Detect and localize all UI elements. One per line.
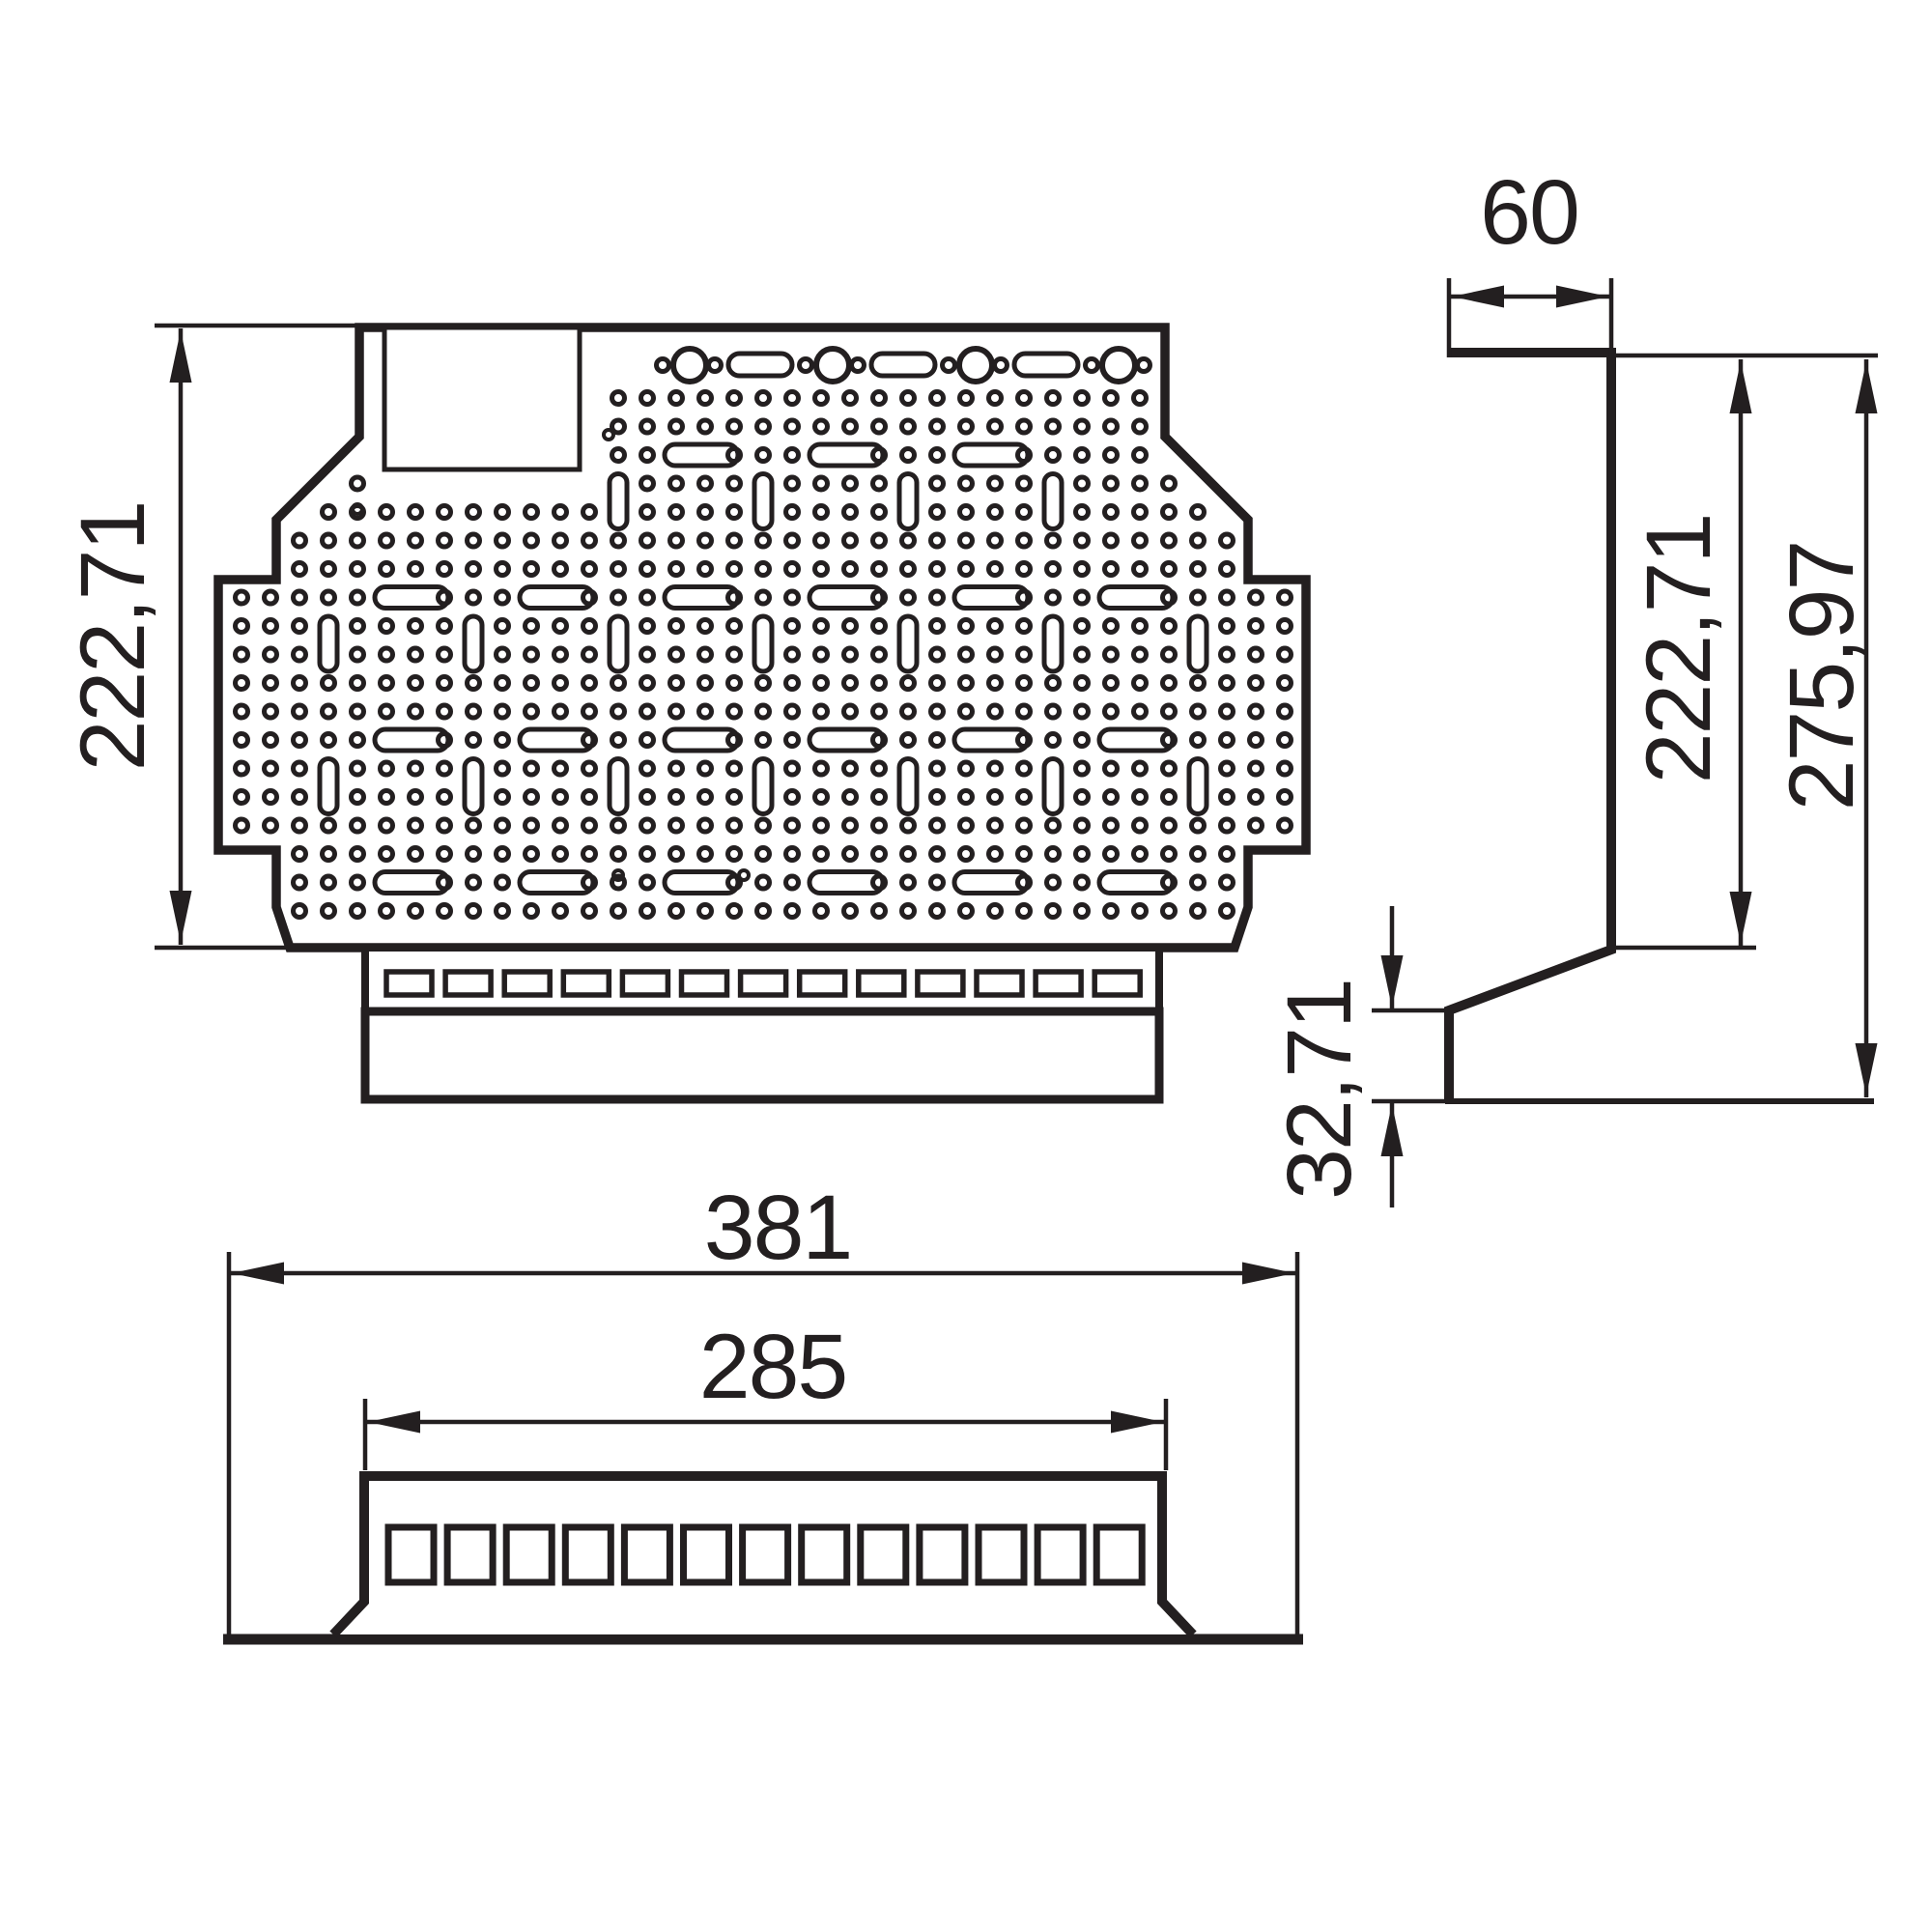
- arrowhead-icon: [1856, 361, 1878, 413]
- arrowhead-icon: [1730, 361, 1752, 413]
- arrowhead-icon: [170, 891, 192, 943]
- arrowhead-icon: [1242, 1263, 1294, 1285]
- front-view: 222,71: [62, 326, 1306, 1099]
- dim-top-depth: 60: [1449, 161, 1611, 357]
- dim-side-plate-height: 222,71: [1611, 359, 1756, 948]
- arrowhead-icon: [232, 1263, 284, 1285]
- dim-side-plate-height-label: 222,71: [1628, 515, 1730, 784]
- dim-base-width: 381: [229, 1177, 1297, 1279]
- arrowhead-icon: [170, 330, 192, 383]
- arrowhead-icon: [1381, 1104, 1404, 1156]
- arrowhead-icon: [1111, 1411, 1163, 1434]
- side-profile: [1449, 353, 1611, 1101]
- bottom-bar: [365, 1011, 1159, 1099]
- arrowhead-icon: [1556, 286, 1608, 308]
- side-view: 60 222,71 275,97 32,71: [1268, 161, 1878, 1207]
- arrowhead-icon: [1730, 892, 1752, 944]
- arrowhead-icon: [1381, 955, 1404, 1008]
- vent-strip: [365, 948, 1159, 1011]
- dimension-drawing: 222,71 60 222,71 275,97: [0, 0, 1931, 1932]
- dim-top-depth-label: 60: [1480, 161, 1578, 264]
- dim-side-total-height: 275,97: [1771, 359, 1873, 1097]
- dim-front-height-label: 222,71: [62, 502, 164, 772]
- dim-inner-width: 285: [365, 1316, 1166, 1470]
- dim-side-total-height-label: 275,97: [1771, 542, 1873, 811]
- dim-foot-height-label: 32,71: [1268, 980, 1371, 1200]
- arrowhead-icon: [1856, 1043, 1878, 1095]
- dim-base-width-label: 381: [704, 1177, 852, 1279]
- dim-foot-height: 32,71: [1268, 906, 1446, 1207]
- blank-mounting-area: [384, 327, 580, 469]
- bottom-view-body: [333, 1476, 1193, 1634]
- dim-inner-width-label: 285: [699, 1316, 847, 1418]
- arrowhead-icon: [368, 1411, 420, 1434]
- technical-drawing-page: 222,71 60 222,71 275,97: [0, 0, 1931, 1932]
- arrowhead-icon: [1452, 286, 1504, 308]
